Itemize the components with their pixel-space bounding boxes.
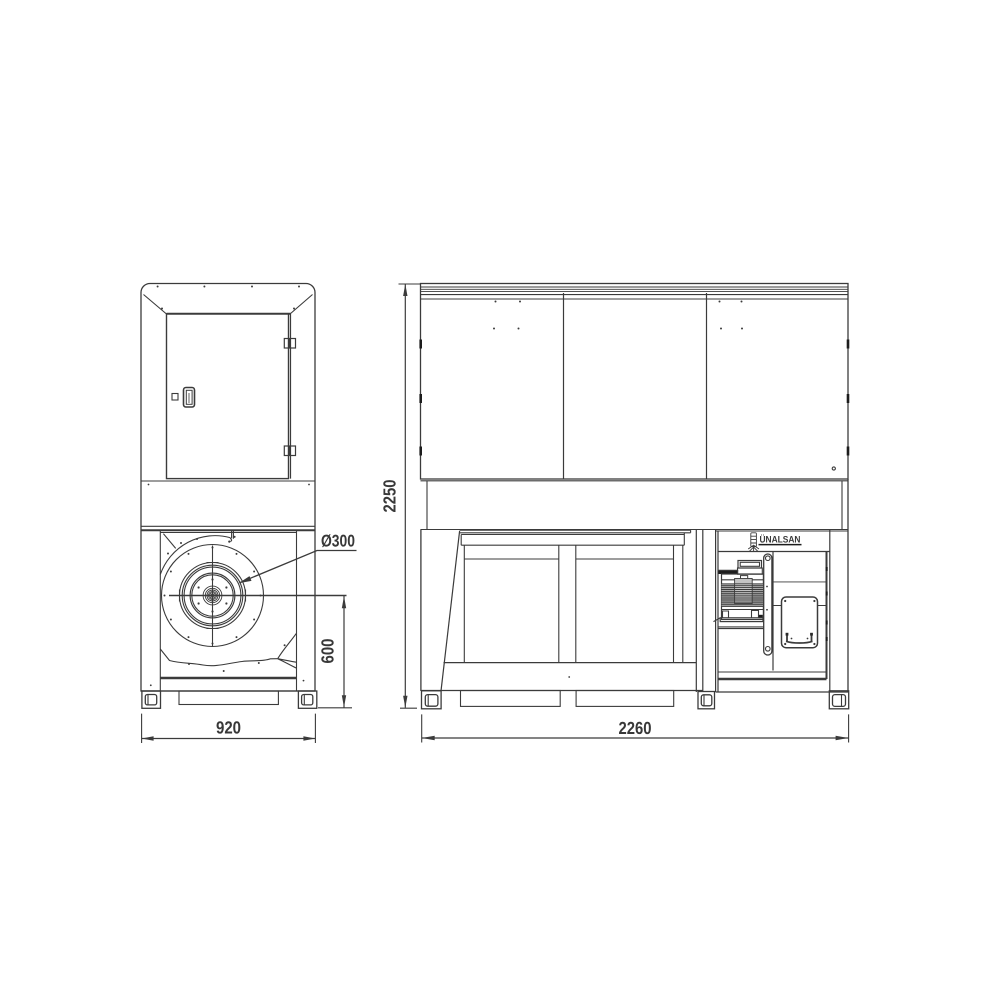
svg-text:ÜNALSAN: ÜNALSAN bbox=[760, 534, 801, 545]
svg-text:920: 920 bbox=[216, 718, 241, 738]
svg-text:600: 600 bbox=[318, 638, 338, 663]
svg-text:Ø300: Ø300 bbox=[321, 532, 355, 551]
svg-text:2250: 2250 bbox=[380, 479, 400, 512]
svg-text:2260: 2260 bbox=[619, 718, 652, 738]
